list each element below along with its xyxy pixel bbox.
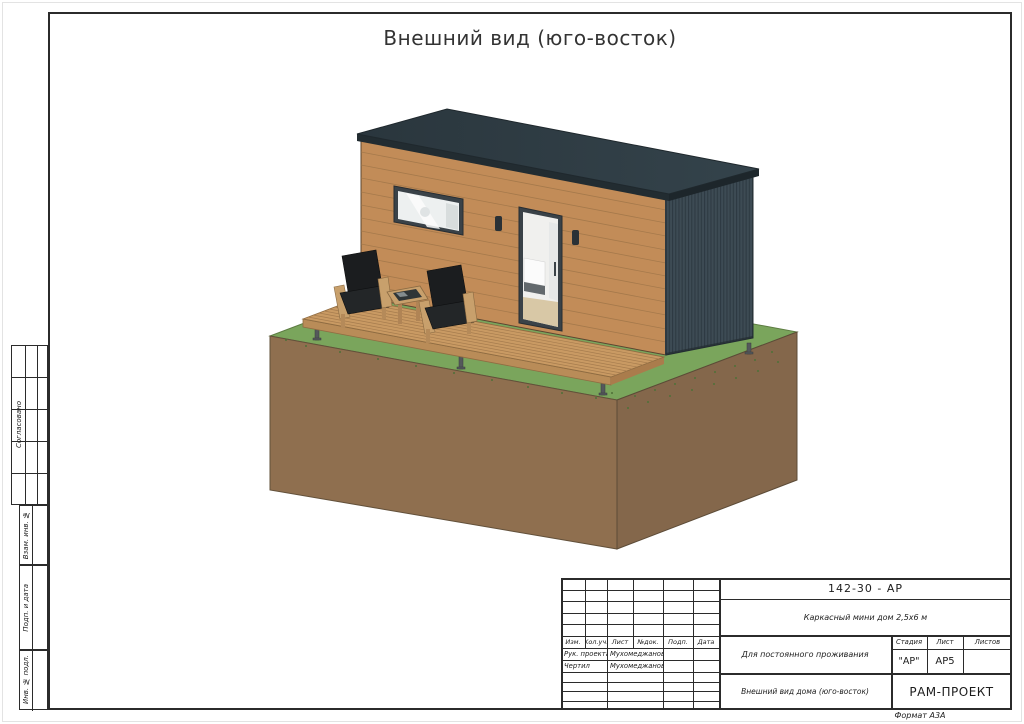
sheet-label: Лист [927,635,963,649]
sheets-label: Листов [963,635,1012,649]
col-podp: Подп. [663,636,693,648]
col-izm: Изм. [561,636,585,648]
sheet-value: АР5 [927,649,963,673]
sidebar-item-label: Инв. № подл. [22,655,30,704]
door-interior-bed [524,258,545,286]
role-chertil: Чертил [561,660,607,672]
entry-door [519,207,562,331]
col-koluch: Кол.уч. [585,636,607,648]
format-note: Формат А3А [860,711,980,720]
sidebar-item-label: Взам. инв. № [22,511,30,559]
house-end-wall [666,174,753,355]
stamp-project-name: Каркасный мини дом 2,5х6 м [719,599,1012,635]
sidebar-item-vzam-inv: Взам. инв. № [19,505,48,565]
sidebar-item-podp-data: Подп. и дата [19,565,48,650]
stamp-company: РАМ-ПРОЕКТ [891,673,1012,710]
sheets-value [963,649,1012,673]
name-chertil: Мухомеджанов [607,660,663,672]
wall-sconce-right [572,230,579,245]
drawing-sheet: Внешний вид (юго-восток) [0,0,1024,724]
col-data: Дата [693,636,719,648]
stage-value: "АР" [891,649,927,673]
col-list: Лист [607,636,633,648]
stamp-purpose: Для постоянного проживания [719,635,891,673]
stamp-doc-number: 142-30 - АР [719,578,1012,599]
title-block: Изм. Кол.уч. Лист №док. Подп. Дата Рук. … [561,578,1012,710]
stamp-view-title: Внешний вид дома (юго-восток) [719,673,891,710]
role-ruk-proekta: Рук. проекта [561,648,607,660]
wall-sconce-left [495,216,502,231]
sidebar-item-inv-podl: Инв. № подл. [19,650,48,710]
col-ndok: №док. [633,636,663,648]
sidebar-item-label: Подп. и дата [22,584,30,632]
approval-label: Согласовано [15,401,23,448]
door-interior-wall [549,222,558,301]
name-ruk-proekta: Мухомеджанов [607,648,663,660]
approval-block: Согласовано [11,345,48,505]
stage-label: Стадия [891,635,927,649]
